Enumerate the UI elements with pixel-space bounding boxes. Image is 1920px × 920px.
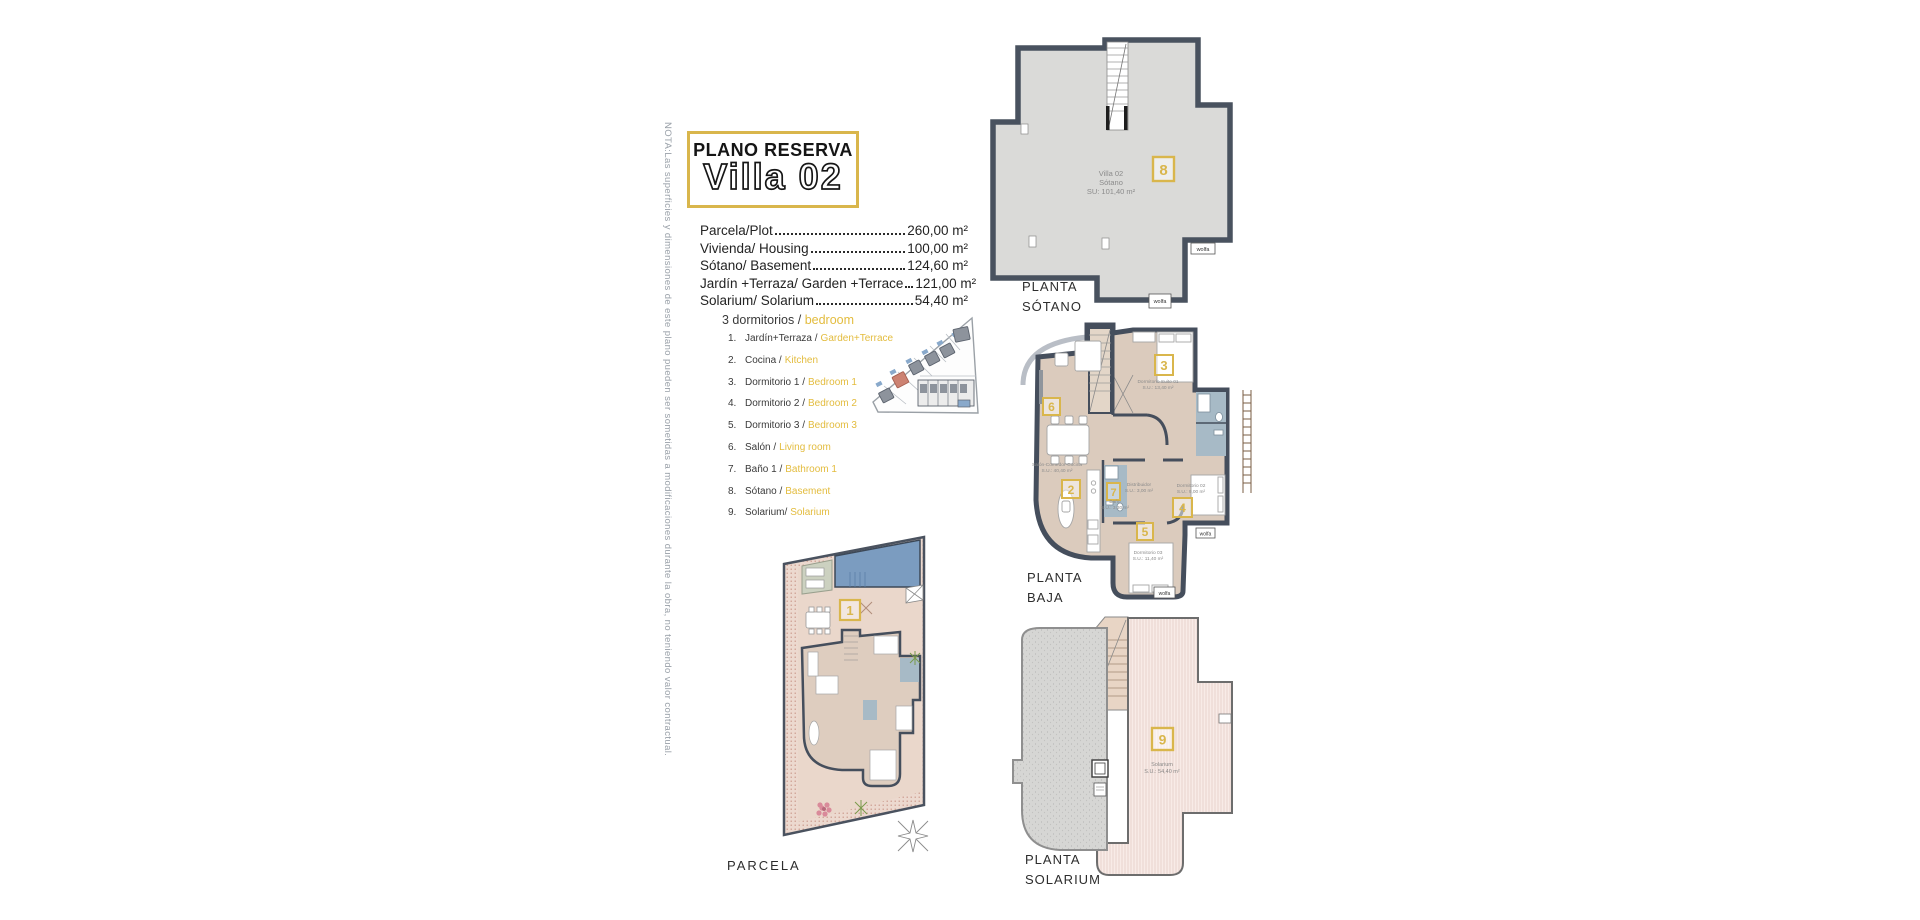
measurement-label: Parcela/Plot xyxy=(700,223,773,238)
legend-item-es: Baño 1 / xyxy=(745,464,782,475)
legend-item-en: Bedroom 1 xyxy=(808,377,857,388)
legend-item-es: Solarium/ xyxy=(745,507,787,518)
legend-item-number: 7. xyxy=(728,464,745,475)
basement-info-line1: Villa 02 xyxy=(1099,169,1123,178)
legend-item: 6.Salón /Living room xyxy=(728,442,893,453)
legend-heading-en: bedroom xyxy=(805,313,854,327)
title-box: PLANO RESERVA Villa 02 xyxy=(687,131,859,208)
legend-heading-es: 3 dormitorios / xyxy=(722,313,801,327)
measurements-list: Parcela/Plot260,00 m² Vivienda/ Housing1… xyxy=(700,221,968,308)
room-number-suite: 3 xyxy=(1160,358,1167,373)
legend-item-en: Kitchen xyxy=(785,355,818,366)
builder-logo: wolfa xyxy=(1196,247,1211,253)
ground-floor-caption-line2: BAJA xyxy=(1027,588,1083,608)
measurement-value: 124,60 m² xyxy=(907,258,968,273)
measurement-label: Solarium/ Solarium xyxy=(700,293,814,308)
legend-item-en: Bedroom 3 xyxy=(808,420,857,431)
salon-name: Salón-Comedor-Cocina xyxy=(1032,462,1082,468)
room-number-kitchen: 2 xyxy=(1068,483,1075,497)
basement-stair xyxy=(1106,42,1128,130)
brochure-page: NOTA:Las superficies y dimensiones de es… xyxy=(0,0,1920,920)
measurement-label: Sótano/ Basement xyxy=(700,258,811,273)
legend-item: 7.Baño 1 /Bathroom 1 xyxy=(728,464,893,475)
measurement-row: Parcela/Plot260,00 m² xyxy=(700,221,968,238)
legend-item-number: 4. xyxy=(728,398,745,409)
ac-unit xyxy=(1219,714,1231,723)
map-pool xyxy=(958,400,970,407)
solarium-room-number: 9 xyxy=(1159,732,1167,748)
hall-name: Distribuidor xyxy=(1127,482,1152,488)
outdoor-dining xyxy=(806,607,830,634)
villa-name: Villa 02 xyxy=(690,159,856,195)
measurement-row: Sótano/ Basement124,60 m² xyxy=(700,256,968,273)
solarium-caption-line2: SOLARIUM xyxy=(1025,870,1101,890)
room-number-bedroom2: 4 xyxy=(1179,501,1186,515)
solarium-info-line2: S.U.: 54,40 m² xyxy=(1144,769,1180,775)
builder-logo: wolfa xyxy=(1159,591,1171,597)
legend-item-number: 3. xyxy=(728,377,745,388)
plot-room-number: 1 xyxy=(846,603,853,618)
plot-plan: 1 xyxy=(770,528,970,878)
legend-item: 5.Dormitorio 3 /Bedroom 3 xyxy=(728,420,893,431)
builder-logo-box: wolfa xyxy=(1154,587,1175,598)
legend-item-es: Cocina / xyxy=(745,355,782,366)
room-number-bedroom3: 5 xyxy=(1142,525,1149,539)
dotted-leader xyxy=(905,286,913,288)
builder-logo: wolfa xyxy=(1200,532,1212,538)
legend-item-number: 2. xyxy=(728,355,745,366)
basement-room-number: 8 xyxy=(1159,162,1167,179)
compass-star xyxy=(898,820,928,852)
pergola xyxy=(1243,390,1251,493)
legend-item-es: Jardín+Terraza / xyxy=(745,333,818,344)
legend-item-es: Dormitorio 3 / xyxy=(745,420,805,431)
legend-item-number: 8. xyxy=(728,486,745,497)
legend-item: 8.Sótano /Basement xyxy=(728,486,893,497)
plot-caption: PARCELA xyxy=(727,856,801,876)
bedroom2-name: Dormitorio 02 xyxy=(1177,483,1206,489)
legend-heading: 3 dormitorios / bedroom xyxy=(722,313,854,327)
legend-item-en: Bedroom 2 xyxy=(808,398,857,409)
measurement-value: 260,00 m² xyxy=(907,223,968,238)
salon-area: S.U.: 40,40 m² xyxy=(1042,468,1073,474)
legend-item-number: 6. xyxy=(728,442,745,453)
plot-room-tag: 1 xyxy=(840,600,860,620)
measurement-value: 121,00 m² xyxy=(915,276,976,291)
legend-item-es: Dormitorio 2 / xyxy=(745,398,805,409)
basement-caption-line1: PLANTA xyxy=(1022,277,1082,297)
measurement-label: Vivienda/ Housing xyxy=(700,241,809,256)
measurement-row: Solarium/ Solarium54,40 m² xyxy=(700,291,968,308)
dotted-leader xyxy=(813,268,905,270)
dotted-leader xyxy=(775,233,905,235)
bedroom3-name: Dormitorio 03 xyxy=(1134,550,1163,556)
bedroom2-area: S.U.: 9,00 m² xyxy=(1177,489,1206,495)
legend-item: 9.Solarium/Solarium xyxy=(728,507,893,518)
measurement-row: Vivienda/ Housing100,00 m² xyxy=(700,238,968,255)
roof-vent-box xyxy=(1094,783,1106,796)
patio-loungers xyxy=(802,560,832,594)
legend-item-en: Living room xyxy=(779,442,831,453)
disclaimer-note: NOTA:Las superficies y dimensiones de es… xyxy=(662,122,673,772)
legend-item-es: Dormitorio 1 / xyxy=(745,377,805,388)
dotted-leader xyxy=(816,303,913,305)
basement-room-tag: 8 xyxy=(1153,157,1174,181)
room-number-living: 6 xyxy=(1048,400,1055,414)
legend-item-en: Solarium xyxy=(790,507,829,518)
measurement-value: 54,40 m² xyxy=(915,293,968,308)
solarium-plan: 9 Solarium S.U.: 54,40 m² xyxy=(1010,610,1245,882)
builder-logo-box: wolfa xyxy=(1191,243,1215,254)
suite-area: S.U.: 13,40 m² xyxy=(1143,385,1174,391)
bath-name: Baño xyxy=(1109,499,1121,505)
legend-item-es: Salón / xyxy=(745,442,776,453)
measurement-row: Jardín +Terraza/ Garden +Terrace121,00 m… xyxy=(700,273,968,290)
solarium-caption: PLANTA SOLARIUM xyxy=(1025,850,1101,890)
bedroom3-area: S.U.: 11,40 m² xyxy=(1133,556,1164,562)
ground-floor-caption-line1: PLANTA xyxy=(1027,568,1083,588)
room-number-bathroom: 7 xyxy=(1110,487,1116,499)
basement-floor-plan: 8 Villa 02 Sótano SU: 101,40 m² wolfa wo… xyxy=(985,28,1240,318)
corner-hatch xyxy=(906,585,923,603)
ground-floor-plan: 6 3 2 7 4 5 Dormitorio Suite 01 S.U.: 13… xyxy=(1015,295,1265,600)
site-location-map xyxy=(866,314,986,418)
basement-info-line2: Sótano xyxy=(1099,178,1123,187)
solarium-room-tag: 9 xyxy=(1152,728,1173,750)
legend-item-number: 5. xyxy=(728,420,745,431)
suite-name: Dormitorio Suite 01 xyxy=(1137,379,1178,385)
bath-area: S.U.: 3,30 m² xyxy=(1101,505,1130,511)
legend-item-number: 1. xyxy=(728,333,745,344)
legend-item-en: Bathroom 1 xyxy=(785,464,837,475)
solarium-info-line1: Solarium xyxy=(1151,762,1173,768)
legend-item-en: Basement xyxy=(785,486,830,497)
ground-floor-caption: PLANTA BAJA xyxy=(1027,568,1083,608)
basement-info-line3: SU: 101,40 m² xyxy=(1087,187,1136,196)
measurement-label: Jardín +Terraza/ Garden +Terrace xyxy=(700,276,903,291)
solarium-caption-line1: PLANTA xyxy=(1025,850,1101,870)
roof-area xyxy=(1013,628,1107,850)
legend-item-number: 9. xyxy=(728,507,745,518)
hall-area: S.U.: 3,00 m² xyxy=(1125,488,1154,494)
measurement-value: 100,00 m² xyxy=(907,241,968,256)
builder-logo-box: wolfa xyxy=(1196,528,1215,538)
roof-hatch-box xyxy=(1092,760,1108,777)
dotted-leader xyxy=(811,251,906,253)
legend-item-es: Sótano / xyxy=(745,486,782,497)
